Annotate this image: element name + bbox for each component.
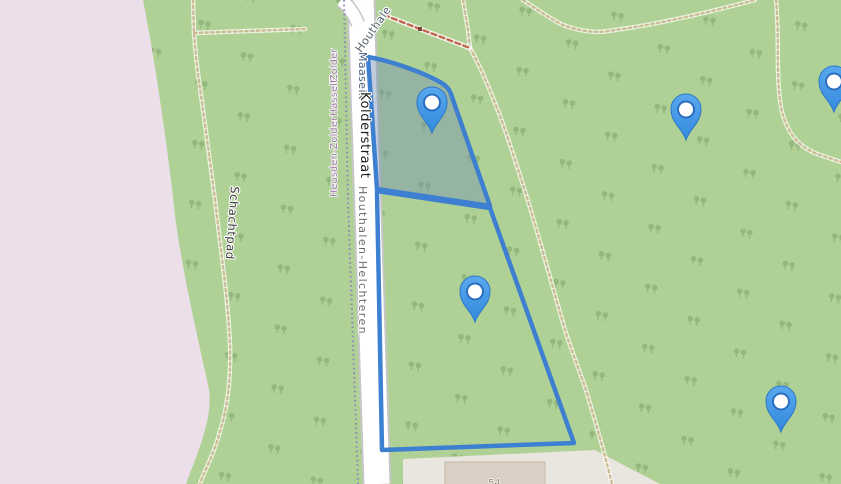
destination-label-zolder: Zolder — [329, 48, 340, 81]
destination-label-hasselt: Hasselt — [329, 79, 340, 116]
map-canvas[interactable]: Schachtpad Houthale Maaseik Kolderstraat… — [0, 0, 841, 484]
street-name-label: Kolderstraat — [357, 92, 372, 178]
house-number-label: 54 — [488, 478, 501, 484]
gate-node — [418, 27, 422, 31]
destination-label-heusden-zolder: Heusden-Zolder — [329, 117, 340, 197]
municipality-label-right: Houthalen-Helchteren — [356, 186, 369, 335]
map-viewport[interactable]: Schachtpad Houthale Maaseik Kolderstraat… — [0, 0, 841, 484]
